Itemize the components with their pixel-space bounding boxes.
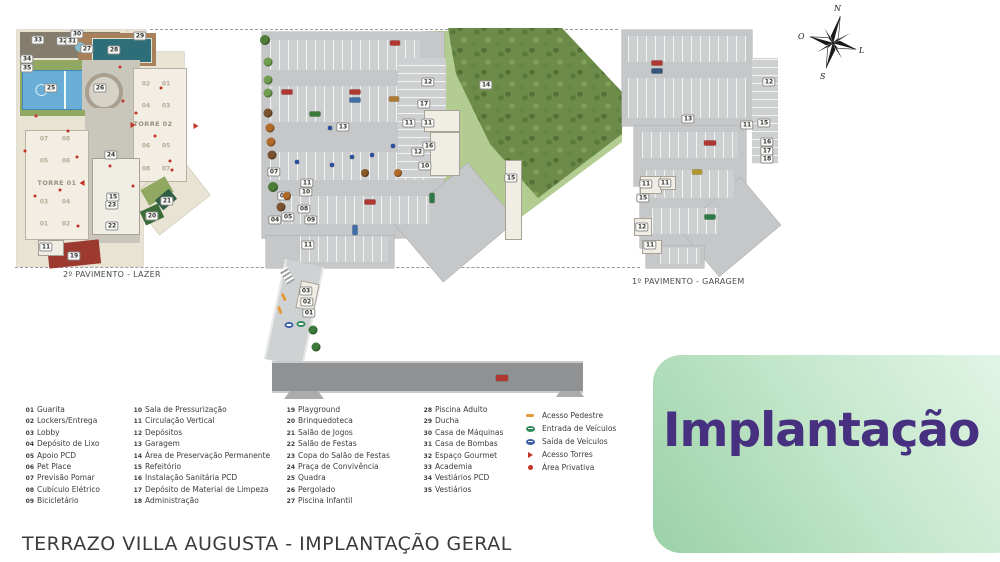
legend-item-label: Vestiários PCD bbox=[435, 473, 489, 482]
legend-item-label: Playground bbox=[298, 405, 340, 414]
legend-item-label: Pergolado bbox=[298, 485, 335, 494]
legend-item-label: Guarita bbox=[37, 405, 65, 414]
legend-item: 18Administração bbox=[133, 496, 270, 507]
legend-item: 03Lobby bbox=[25, 428, 100, 439]
legend-item-label: Pet Place bbox=[37, 462, 71, 471]
legend-item: 22Salão de Festas bbox=[286, 439, 390, 450]
legend-item-number: 04 bbox=[25, 441, 34, 448]
legend-symbol-label: Área Privativa bbox=[542, 463, 594, 472]
legend-item-number: 22 bbox=[286, 441, 295, 448]
legend-symbol-item: Acesso Torres bbox=[524, 448, 616, 461]
legend-item-number: 13 bbox=[133, 441, 142, 448]
legend-item: 27Piscina Infantil bbox=[286, 496, 390, 507]
legend-symbol-item: Acesso Pedestre bbox=[524, 409, 616, 422]
legend-item-number: 34 bbox=[423, 475, 432, 482]
legend-item-number: 15 bbox=[133, 464, 142, 471]
-rea-privativa-icon bbox=[524, 465, 536, 470]
legend-item-number: 31 bbox=[423, 441, 432, 448]
legend-item-number: 19 bbox=[286, 407, 295, 414]
legend-item-label: Copa do Salão de Festas bbox=[298, 451, 390, 460]
legend-column: 10Sala de Pressurização11Circulação Vert… bbox=[133, 405, 270, 508]
legend-item-number: 09 bbox=[25, 498, 34, 505]
legend-item-label: Piscina Infantil bbox=[298, 496, 352, 505]
legend-item-label: Depósito de Lixo bbox=[37, 439, 99, 448]
legend-item-label: Sala de Pressurização bbox=[145, 405, 227, 414]
page-title: Implantação bbox=[663, 403, 979, 458]
legend-item-number: 06 bbox=[25, 464, 34, 471]
acesso-torres-icon bbox=[524, 452, 536, 458]
legend-item-number: 11 bbox=[133, 418, 142, 425]
legend-item-label: Lockers/Entrega bbox=[37, 416, 97, 425]
legend-item: 12Depósitos bbox=[133, 428, 270, 439]
legend-item: 24Praça de Convivência bbox=[286, 462, 390, 473]
legend-item-label: Ducha bbox=[435, 416, 459, 425]
legend-item-label: Academia bbox=[435, 462, 472, 471]
legend-item: 23Copa do Salão de Festas bbox=[286, 451, 390, 462]
sa-da-de-ve-culos-icon bbox=[524, 439, 536, 445]
legend-item-number: 20 bbox=[286, 418, 295, 425]
legend-item-label: Área de Preservação Permanente bbox=[145, 451, 270, 460]
legend-item: 30Casa de Máquinas bbox=[423, 428, 503, 439]
legend-item-label: Depósito de Material de Limpeza bbox=[145, 485, 269, 494]
legend-item: 25Quadra bbox=[286, 473, 390, 484]
legend-symbol-label: Saída de Veículos bbox=[542, 437, 608, 446]
legend-symbol-item: Entrada de Veículos bbox=[524, 422, 616, 435]
legend-item-label: Casa de Bombas bbox=[435, 439, 498, 448]
legend-item-number: 18 bbox=[133, 498, 142, 505]
legend-item: 07Previsão Pomar bbox=[25, 473, 100, 484]
legend-item: 10Sala de Pressurização bbox=[133, 405, 270, 416]
title-box: Implantação bbox=[653, 355, 1000, 553]
legend-column: 19Playground20Brinquedoteca21Salão de Jo… bbox=[286, 405, 390, 508]
legend-item: 11Circulação Vertical bbox=[133, 416, 270, 427]
legend-item-label: Espaço Gourmet bbox=[435, 451, 497, 460]
legend-item: 01Guarita bbox=[25, 405, 100, 416]
legend-symbol-item: Saída de Veículos bbox=[524, 435, 616, 448]
legend-item: 28Piscina Adulto bbox=[423, 405, 503, 416]
legend-item-number: 25 bbox=[286, 475, 295, 482]
legend-item-number: 26 bbox=[286, 487, 295, 494]
legend-item-label: Refeitório bbox=[145, 462, 181, 471]
legend-item-number: 12 bbox=[133, 430, 142, 437]
legend-item: 16Instalação Sanitária PCD bbox=[133, 473, 270, 484]
legend-item-number: 29 bbox=[423, 418, 432, 425]
legend-item: 02Lockers/Entrega bbox=[25, 416, 100, 427]
legend-item: 26Pergolado bbox=[286, 485, 390, 496]
legend-symbol-label: Acesso Pedestre bbox=[542, 411, 603, 420]
legend-symbol-item: Área Privativa bbox=[524, 461, 616, 474]
legend-item-label: Previsão Pomar bbox=[37, 473, 95, 482]
legend-item-label: Circulação Vertical bbox=[145, 416, 215, 425]
legend-item-number: 17 bbox=[133, 487, 142, 494]
legend-item: 20Brinquedoteca bbox=[286, 416, 390, 427]
legend-item: 32Espaço Gourmet bbox=[423, 451, 503, 462]
legend-item: 13Garagem bbox=[133, 439, 270, 450]
legend-item-number: 24 bbox=[286, 464, 295, 471]
legend-item-label: Lobby bbox=[37, 428, 60, 437]
legend-item-number: 05 bbox=[25, 453, 34, 460]
legend-item-label: Cubículo Elétrico bbox=[37, 485, 100, 494]
legend-item-number: 01 bbox=[25, 407, 34, 414]
legend-item-number: 02 bbox=[25, 418, 34, 425]
legend-item-label: Administração bbox=[145, 496, 199, 505]
legend-item: 34Vestiários PCD bbox=[423, 473, 503, 484]
legend-item-number: 08 bbox=[25, 487, 34, 494]
legend-item: 05Apoio PCD bbox=[25, 451, 100, 462]
legend-item: 08Cubículo Elétrico bbox=[25, 485, 100, 496]
legend-item: 09Bicicletário bbox=[25, 496, 100, 507]
legend-item-label: Depósitos bbox=[145, 428, 182, 437]
legend-item-number: 30 bbox=[423, 430, 432, 437]
legend-item-number: 10 bbox=[133, 407, 142, 414]
legend-item: 29Ducha bbox=[423, 416, 503, 427]
entrada-de-ve-culos-icon bbox=[524, 426, 536, 432]
legend-item-label: Apoio PCD bbox=[37, 451, 76, 460]
legend-item: 17Depósito de Material de Limpeza bbox=[133, 485, 270, 496]
legend-item-number: 21 bbox=[286, 430, 295, 437]
legend-item: 31Casa de Bombas bbox=[423, 439, 503, 450]
legend-item-label: Casa de Máquinas bbox=[435, 428, 503, 437]
legend-item-label: Piscina Adulto bbox=[435, 405, 487, 414]
legend-column: 01Guarita02Lockers/Entrega03Lobby04Depós… bbox=[25, 405, 100, 508]
legend-item: 06Pet Place bbox=[25, 462, 100, 473]
legend-item-number: 03 bbox=[25, 430, 34, 437]
legend-item: 33Academia bbox=[423, 462, 503, 473]
legend-item-number: 14 bbox=[133, 453, 142, 460]
legend-item-label: Vestiários bbox=[435, 485, 471, 494]
legend-item-number: 28 bbox=[423, 407, 432, 414]
legend-item-number: 23 bbox=[286, 453, 295, 460]
legend-symbol-label: Entrada de Veículos bbox=[542, 424, 616, 433]
legend-item-label: Brinquedoteca bbox=[298, 416, 353, 425]
legend-item-label: Quadra bbox=[298, 473, 326, 482]
legend-item: 19Playground bbox=[286, 405, 390, 416]
legend-symbols-column: Acesso PedestreEntrada de VeículosSaída … bbox=[524, 409, 616, 474]
legend-item-number: 16 bbox=[133, 475, 142, 482]
legend-item-number: 33 bbox=[423, 464, 432, 471]
legend-item-label: Praça de Convivência bbox=[298, 462, 379, 471]
legend-item: 14Área de Preservação Permanente bbox=[133, 451, 270, 462]
legend-symbol-label: Acesso Torres bbox=[542, 450, 593, 459]
legend-item-label: Salão de Festas bbox=[298, 439, 357, 448]
legend-item: 35Vestiários bbox=[423, 485, 503, 496]
legend-item-number: 35 bbox=[423, 487, 432, 494]
legend-item-label: Salão de Jogos bbox=[298, 428, 353, 437]
legend-item: 21Salão de Jogos bbox=[286, 428, 390, 439]
legend-item-label: Bicicletário bbox=[37, 496, 79, 505]
legend-item-number: 07 bbox=[25, 475, 34, 482]
legend-item-label: Instalação Sanitária PCD bbox=[145, 473, 237, 482]
legend-item: 04Depósito de Lixo bbox=[25, 439, 100, 450]
legend-column: 28Piscina Adulto29Ducha30Casa de Máquina… bbox=[423, 405, 503, 496]
site-plan-page: N O L S 33323130272829343525262415232220… bbox=[0, 0, 1000, 562]
project-title: TERRAZO VILLA AUGUSTA - IMPLANTAÇÃO GERA… bbox=[22, 533, 512, 555]
legend-item-label: Garagem bbox=[145, 439, 180, 448]
legend-item-number: 27 bbox=[286, 498, 295, 505]
legend-item-number: 32 bbox=[423, 453, 432, 460]
legend-item: 15Refeitório bbox=[133, 462, 270, 473]
acesso-pedestre-icon bbox=[524, 414, 536, 417]
